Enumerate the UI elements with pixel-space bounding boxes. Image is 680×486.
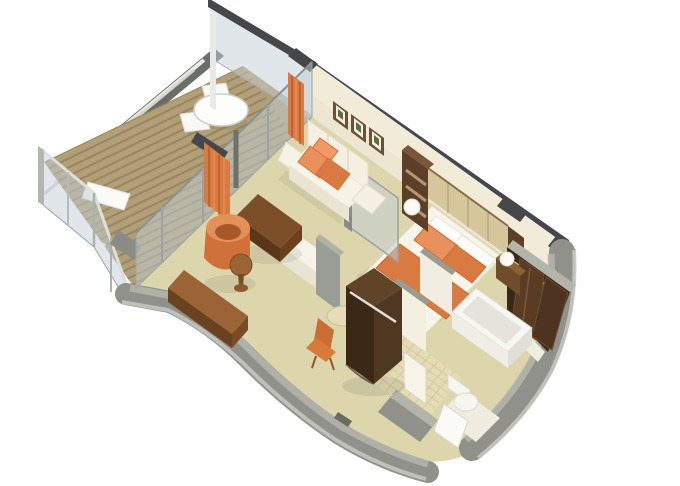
round-table	[194, 94, 248, 126]
tub-chair	[204, 214, 256, 293]
suite-floorplan-svg	[0, 0, 680, 486]
orange-curtain	[288, 72, 304, 146]
table-lamp	[404, 199, 420, 215]
suite-floorplan-render	[0, 0, 680, 486]
table-lamp	[500, 252, 514, 266]
